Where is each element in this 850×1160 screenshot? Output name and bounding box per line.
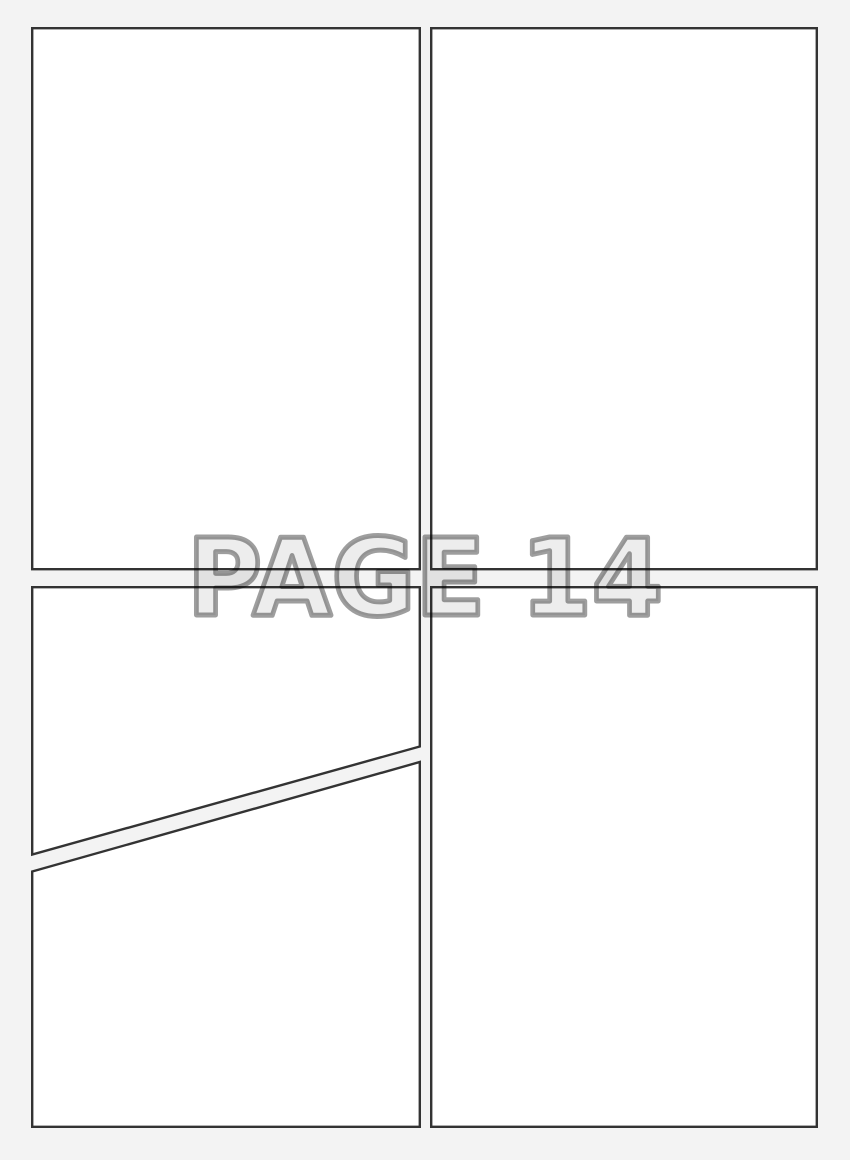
panel-grid: PAGE 14 bbox=[0, 0, 850, 1160]
panel-top-right bbox=[431, 28, 817, 569]
panel-bottom-right bbox=[431, 587, 817, 1127]
comic-page-template: PAGE 14 bbox=[0, 0, 850, 1160]
page-number-watermark: PAGE 14 bbox=[187, 517, 663, 641]
panel-top-left bbox=[32, 28, 420, 569]
